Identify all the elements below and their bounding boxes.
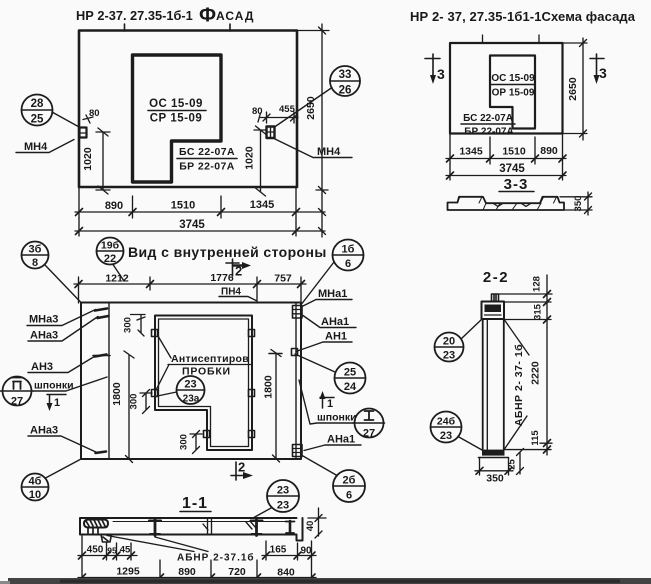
svg-text:315: 315 bbox=[533, 303, 544, 320]
svg-text:1020: 1020 bbox=[82, 147, 94, 171]
svg-text:АН1: АН1 bbox=[325, 331, 347, 343]
svg-text:МН4: МН4 bbox=[317, 146, 341, 158]
svg-text:27: 27 bbox=[363, 428, 375, 440]
svg-text:300: 300 bbox=[123, 317, 134, 333]
svg-text:НР 2-37. 27.35-1б-1: НР 2-37. 27.35-1б-1 bbox=[76, 8, 193, 23]
svg-text:45: 45 bbox=[120, 545, 131, 556]
svg-text:24: 24 bbox=[344, 381, 357, 393]
svg-text:БС 22-07А: БС 22-07А bbox=[463, 113, 513, 124]
svg-text:СР 15-09: СР 15-09 bbox=[150, 113, 203, 125]
svg-text:1800: 1800 bbox=[111, 382, 123, 406]
svg-text:840: 840 bbox=[277, 567, 295, 579]
svg-text:БС 22-07А: БС 22-07А bbox=[179, 146, 235, 158]
svg-text:28: 28 bbox=[31, 98, 44, 110]
svg-text:4б: 4б bbox=[29, 476, 42, 488]
svg-text:БР 22-07А: БР 22-07А bbox=[464, 127, 513, 138]
svg-text:АНа1: АНа1 bbox=[321, 316, 349, 328]
svg-text:Вид с внутренней стороны: Вид с внутренней стороны bbox=[128, 244, 327, 260]
svg-text:300: 300 bbox=[179, 434, 190, 450]
svg-text:АБНР 2-37.1б: АБНР 2-37.1б bbox=[177, 552, 255, 564]
svg-text:2б: 2б bbox=[343, 475, 356, 487]
svg-text:95: 95 bbox=[107, 546, 117, 556]
svg-text:АНа3: АНа3 bbox=[30, 425, 58, 437]
svg-text:25: 25 bbox=[344, 367, 356, 379]
svg-text:19б: 19б bbox=[101, 240, 120, 252]
svg-text:22: 22 bbox=[104, 253, 116, 265]
svg-text:25: 25 bbox=[31, 114, 44, 126]
svg-text:890: 890 bbox=[178, 566, 196, 578]
svg-text:АН3: АН3 bbox=[31, 361, 53, 373]
svg-text:720: 720 bbox=[228, 566, 246, 578]
svg-text:1: 1 bbox=[327, 398, 333, 410]
svg-text:165: 165 bbox=[270, 545, 287, 556]
svg-text:1776: 1776 bbox=[210, 272, 234, 284]
svg-text:27: 27 bbox=[11, 396, 23, 408]
svg-text:350: 350 bbox=[486, 473, 504, 485]
svg-text:ОР 15-09: ОР 15-09 bbox=[492, 88, 535, 99]
svg-text:АБНР 2- 37- 1б: АБНР 2- 37- 1б bbox=[513, 344, 525, 426]
svg-text:300: 300 bbox=[129, 394, 140, 410]
svg-text:23: 23 bbox=[443, 350, 455, 362]
svg-text:1510: 1510 bbox=[171, 200, 195, 212]
svg-text:АСАД: АСАД bbox=[216, 9, 254, 23]
svg-text:1510: 1510 bbox=[502, 146, 526, 158]
svg-text:90: 90 bbox=[300, 546, 312, 557]
svg-text:2220: 2220 bbox=[530, 361, 542, 385]
svg-text:40: 40 bbox=[305, 521, 316, 532]
svg-text:2650: 2650 bbox=[305, 96, 317, 120]
svg-text:23: 23 bbox=[440, 430, 452, 442]
svg-text:3: 3 bbox=[437, 66, 445, 82]
svg-text:890: 890 bbox=[105, 200, 123, 212]
svg-text:Антисептиров: Антисептиров bbox=[171, 353, 249, 365]
svg-text:1б: 1б bbox=[342, 244, 355, 256]
svg-text:3: 3 bbox=[599, 65, 607, 81]
svg-text:1212: 1212 bbox=[105, 273, 129, 285]
svg-text:2: 2 bbox=[235, 264, 242, 279]
svg-text:20: 20 bbox=[443, 336, 455, 348]
svg-text:455: 455 bbox=[279, 104, 296, 115]
svg-text:6: 6 bbox=[345, 258, 351, 270]
svg-text:8: 8 bbox=[32, 257, 38, 269]
svg-text:23: 23 bbox=[277, 500, 289, 512]
svg-text:1345: 1345 bbox=[250, 199, 274, 211]
svg-text:26: 26 bbox=[339, 85, 352, 97]
svg-text:ОС 15-09: ОС 15-09 bbox=[149, 98, 203, 110]
svg-text:3-3: 3-3 bbox=[504, 176, 529, 193]
svg-text:23а: 23а bbox=[183, 394, 200, 405]
svg-text:80: 80 bbox=[252, 106, 263, 117]
svg-text:Ф: Ф bbox=[199, 5, 216, 27]
svg-text:33: 33 bbox=[339, 69, 352, 81]
svg-text:757: 757 bbox=[274, 273, 292, 285]
svg-text:МНа1: МНа1 bbox=[318, 288, 347, 300]
svg-text:МНа3: МНа3 bbox=[29, 314, 58, 326]
svg-text:10: 10 bbox=[29, 489, 41, 501]
svg-text:2-2: 2-2 bbox=[483, 269, 509, 286]
svg-text:23: 23 bbox=[277, 485, 289, 497]
svg-text:3745: 3745 bbox=[179, 219, 205, 231]
svg-text:23: 23 bbox=[184, 379, 196, 391]
svg-text:115: 115 bbox=[530, 430, 541, 446]
svg-text:1800: 1800 bbox=[263, 375, 275, 399]
svg-text:450: 450 bbox=[87, 545, 104, 556]
svg-text:2650: 2650 bbox=[567, 77, 579, 101]
svg-text:АНа3: АНа3 bbox=[30, 330, 58, 342]
svg-text:3745: 3745 bbox=[499, 163, 525, 175]
svg-text:АНа1: АНа1 bbox=[327, 434, 355, 446]
svg-text:1020: 1020 bbox=[244, 146, 256, 170]
svg-text:шпонки: шпонки bbox=[34, 380, 74, 392]
svg-text:1: 1 bbox=[54, 397, 60, 409]
svg-text:890: 890 bbox=[540, 145, 558, 157]
svg-text:БР 22-07А: БР 22-07А bbox=[179, 161, 235, 173]
svg-text:1345: 1345 bbox=[459, 146, 483, 158]
svg-text:МН4: МН4 bbox=[24, 141, 48, 153]
svg-text:24б: 24б bbox=[437, 416, 456, 428]
svg-text:шпонки: шпонки bbox=[317, 412, 357, 424]
svg-text:128: 128 bbox=[532, 276, 543, 292]
svg-text:1295: 1295 bbox=[116, 566, 140, 578]
svg-text:ОС 15-09: ОС 15-09 bbox=[491, 73, 535, 84]
svg-text:1-1: 1-1 bbox=[182, 495, 208, 512]
svg-text:НР 2- 37, 27.35-1б1-1Схема фас: НР 2- 37, 27.35-1б1-1Схема фасада bbox=[410, 9, 636, 24]
svg-text:6: 6 bbox=[346, 490, 352, 502]
svg-text:2: 2 bbox=[238, 460, 245, 475]
svg-text:3б: 3б bbox=[29, 244, 42, 256]
svg-text:350: 350 bbox=[573, 196, 584, 212]
